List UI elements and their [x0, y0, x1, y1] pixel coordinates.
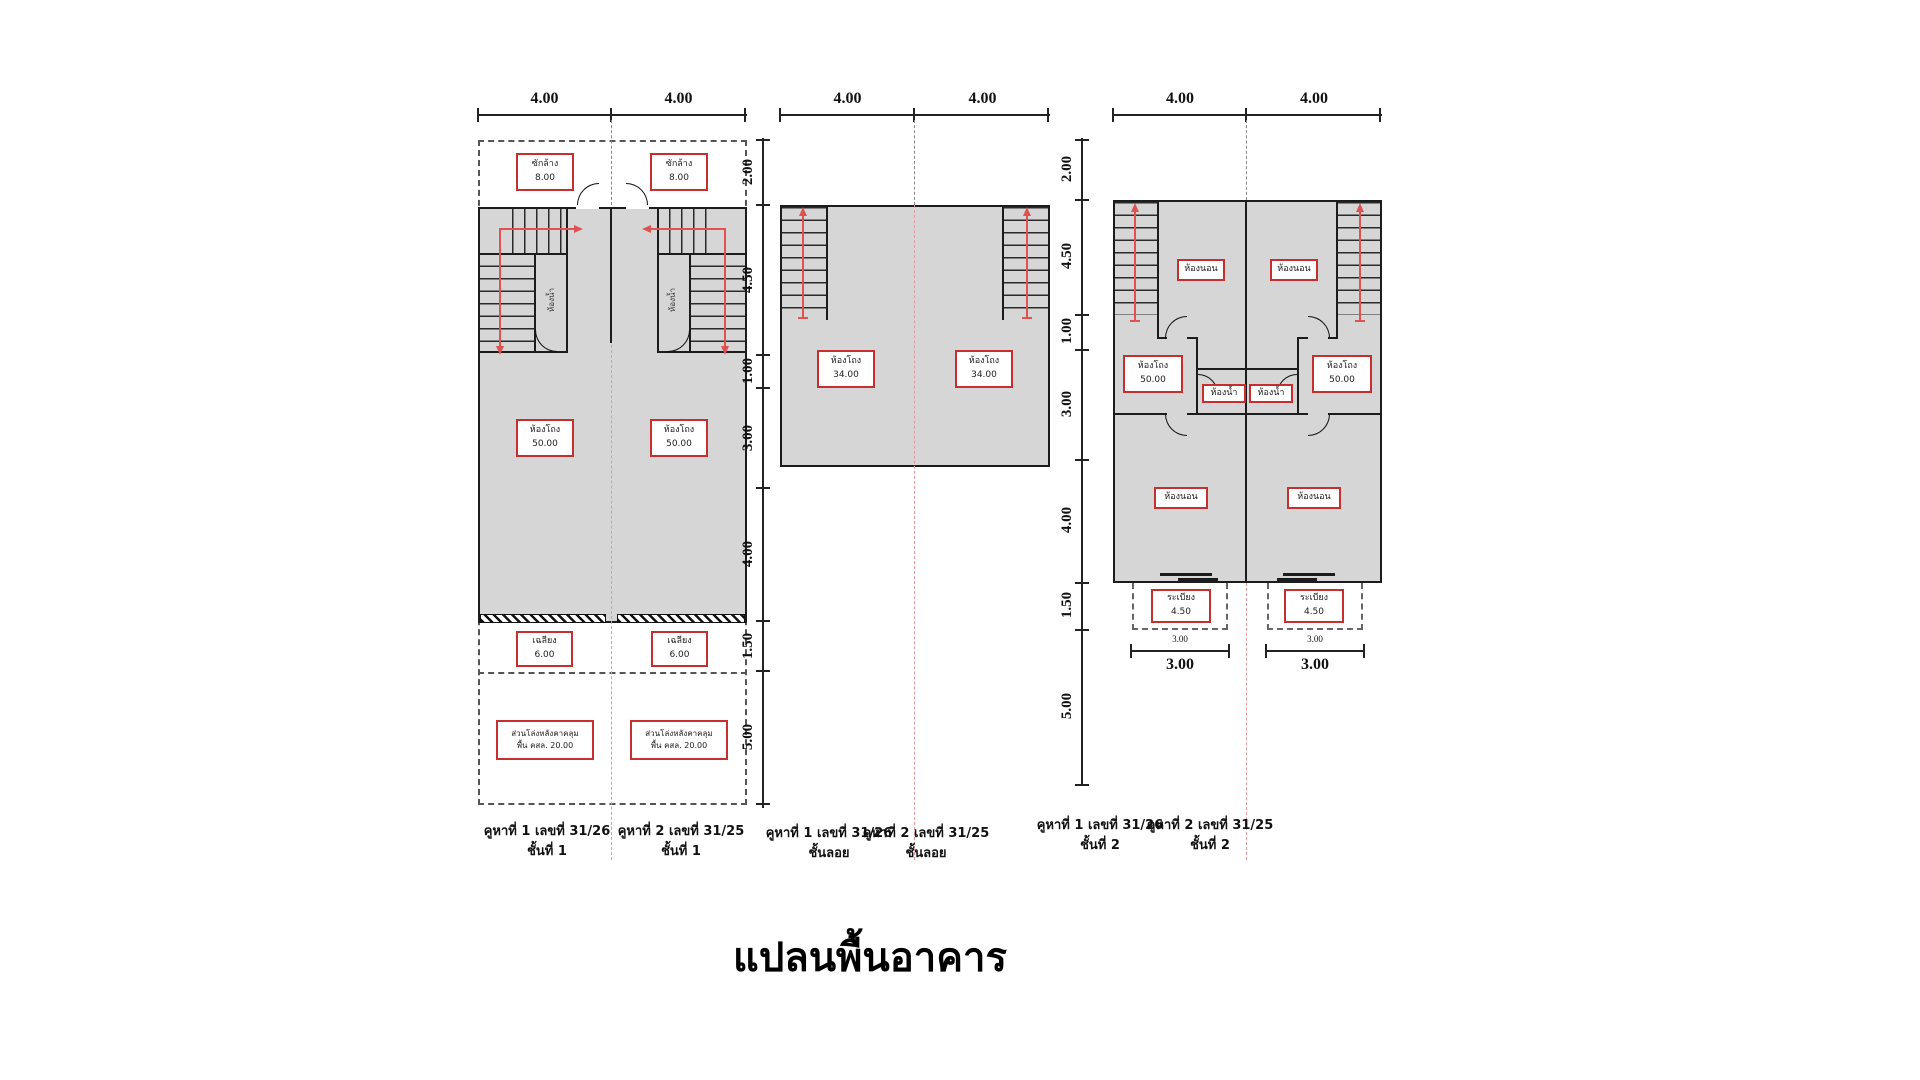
stair-upper-flight: [657, 209, 713, 253]
room-name: ระเบียง: [1167, 592, 1195, 606]
room-label-bath: ห้องน้ำ: [1202, 384, 1246, 403]
stair-up-arrow: [1356, 203, 1364, 212]
stair-lower-flight: [690, 253, 745, 353]
bedroom-wall: [1297, 337, 1299, 370]
dimension-tick: [756, 803, 770, 805]
room-label-balcony: ระเบียง 4.50: [1151, 589, 1211, 623]
bath-wall: [657, 209, 659, 353]
bedroom-wall: [1196, 337, 1198, 370]
dimension-tick: [1075, 314, 1089, 316]
dimension-label: 4.00: [740, 532, 756, 576]
room-label-open-area: ส่วนโล่งหลังคาคลุม พื้น คสล. 20.00: [630, 720, 728, 760]
stair-flight: [782, 207, 826, 318]
room-name: ซักล้าง: [532, 158, 559, 172]
stair-up-arrow: [1131, 203, 1139, 212]
room-area: 4.50: [1171, 606, 1191, 620]
dimension-tick: [1075, 784, 1089, 786]
sliding-door-wall: [480, 614, 606, 623]
dimension-label: 3.00: [1059, 382, 1075, 426]
room-name: ห้องน้ำ: [1211, 387, 1238, 401]
centerline-dashed: [914, 120, 915, 205]
room-name: ห้องนอน: [1184, 263, 1217, 277]
unit-caption: คูหาที่ 2 เลขที่ 31/25: [606, 820, 756, 841]
unit-caption: คูหาที่ 2 เลขที่ 31/25: [851, 822, 1001, 843]
room-name: ห้องโถง: [1327, 360, 1357, 374]
bath-wall: [1247, 368, 1299, 370]
dimension-label: 3.00: [1293, 656, 1337, 674]
dimension-label: 3.00: [740, 416, 756, 460]
stair-direction-line: [1359, 210, 1361, 320]
dimension-label: 3.00: [1158, 656, 1202, 674]
stair-wall: [689, 253, 691, 353]
dimension-tick: [1075, 459, 1089, 461]
stair-upper-flight: [512, 209, 568, 253]
room-area: 50.00: [666, 438, 692, 452]
stair-wall: [480, 253, 568, 255]
room-area: 6.00: [669, 649, 689, 663]
stair-wall: [1336, 200, 1338, 339]
room-label-open-area: ส่วนโล่งหลังคาคลุม พื้น คสล. 20.00: [496, 720, 594, 760]
dimension-label: 4.00: [780, 90, 915, 108]
floor-caption: ชั้นลอย: [851, 842, 1001, 863]
room-label-hall: ห้องโถง 50.00: [1312, 355, 1372, 393]
room-name: ส่วนโล่งหลังคาคลุม: [511, 728, 578, 740]
room-label-bedroom: ห้องนอน: [1177, 259, 1225, 281]
dimension-tick: [1075, 349, 1089, 351]
dimension-tick: [1075, 582, 1089, 584]
dimension-line: [477, 114, 747, 116]
room-area: พื้น คสล. 20.00: [651, 740, 707, 752]
dimension-tick: [1363, 644, 1365, 658]
dimension-label: 4.50: [740, 258, 756, 302]
floor-plan-sheet: 4.00 4.00 ห้องน้ำ ห้องน้ำ ซักล้าง 8.00 ซ…: [0, 0, 1920, 1080]
stair-wall: [1157, 200, 1159, 339]
room-label-hall: ห้องโถง 50.00: [516, 419, 574, 457]
bath-wall: [566, 209, 568, 353]
dimension-label: 4.00: [1059, 498, 1075, 542]
centerline-dashed: [1246, 120, 1247, 200]
dimension-tick: [756, 620, 770, 622]
dimension-tick: [1075, 139, 1089, 141]
dimension-tick: [756, 204, 770, 206]
room-label-hall: ห้องโถง 34.00: [817, 350, 875, 388]
dimension-tick: [477, 108, 479, 122]
sliding-door-wall: [617, 614, 745, 623]
party-wall: [610, 207, 612, 343]
centerline-pink: [611, 345, 612, 860]
room-label-bedroom: ห้องนอน: [1270, 259, 1318, 281]
bath-wall: [1196, 368, 1248, 370]
porch-boundary-dashed-line: [478, 672, 747, 674]
dimension-line: [1081, 138, 1083, 786]
room-name: เฉลียง: [532, 635, 556, 649]
unit-caption: คูหาที่ 1 เลขที่ 31/26: [472, 820, 622, 841]
room-label-wash: ซักล้าง 8.00: [516, 153, 574, 191]
sliding-window: [1283, 573, 1335, 576]
room-label-bedroom: ห้องนอน: [1154, 487, 1208, 509]
stair-direction-line: [1026, 214, 1028, 318]
stair-up-arrow: [574, 225, 583, 233]
room-name: ซักล้าง: [666, 158, 693, 172]
room-name: ระเบียง: [1300, 592, 1328, 606]
stair-start-tick: [798, 317, 808, 319]
stair-direction-line: [1134, 210, 1136, 320]
sheet-title: แปลนพื้นอาคาร: [640, 925, 1100, 989]
dimension-tick: [1047, 108, 1049, 122]
stair-start-tick: [1022, 317, 1032, 319]
dimension-tick: [756, 354, 770, 356]
stair-up-arrow: [642, 225, 651, 233]
stair-start-tick: [1130, 320, 1140, 322]
room-name: ห้องน้ำ: [1258, 387, 1285, 401]
dimension-tick: [756, 139, 770, 141]
stair-up-arrow: [799, 207, 807, 216]
floor-caption: ชั้นที่ 2: [1135, 834, 1285, 855]
dimension-label: 3.00: [1164, 634, 1196, 644]
stair-direction-line: [649, 228, 725, 230]
room-label-porch: เฉลียง 6.00: [651, 631, 708, 667]
room-name: ห้องนอน: [1164, 491, 1197, 505]
stair-wall: [1002, 205, 1004, 320]
stair-flight: [1115, 202, 1157, 315]
room-label-hall: ห้องโถง 50.00: [650, 419, 708, 457]
dimension-tick: [756, 670, 770, 672]
dimension-tick: [1228, 644, 1230, 658]
dimension-label: 4.00: [1113, 90, 1247, 108]
dimension-tick: [756, 487, 770, 489]
dimension-tick: [1075, 199, 1089, 201]
dimension-tick: [756, 387, 770, 389]
room-name: ห้องโถง: [969, 355, 999, 369]
dimension-tick: [744, 108, 746, 122]
dimension-label: 4.00: [612, 90, 745, 108]
dimension-label: 1.00: [740, 349, 756, 393]
stair-down-arrow: [496, 346, 504, 355]
stair-down-arrow: [721, 346, 729, 355]
room-label-hall: ห้องโถง 50.00: [1123, 355, 1183, 393]
room-area: 34.00: [833, 369, 859, 383]
stair-direction-line: [724, 228, 726, 348]
room-area: 50.00: [1140, 374, 1166, 388]
room-name: ห้องโถง: [831, 355, 861, 369]
room-name: ส่วนโล่งหลังคาคลุม: [645, 728, 712, 740]
sliding-window: [1178, 578, 1218, 581]
hall-wall: [1187, 413, 1248, 415]
dimension-tick: [1075, 629, 1089, 631]
centerline-dashed: [611, 120, 612, 205]
room-area: 8.00: [535, 172, 555, 186]
room-area: 4.50: [1304, 606, 1324, 620]
dimension-label: 4.00: [478, 90, 611, 108]
centerline-pink: [914, 205, 915, 860]
dimension-tick: [779, 108, 781, 122]
room-area: พื้น คสล. 20.00: [517, 740, 573, 752]
room-label-wash: ซักล้าง 8.00: [650, 153, 708, 191]
dimension-line: [762, 138, 764, 808]
dimension-tick: [1379, 108, 1381, 122]
dimension-line: [1112, 114, 1382, 116]
room-label-porch: เฉลียง 6.00: [516, 631, 573, 667]
dimension-tick: [1130, 644, 1132, 658]
dimension-label: 1.50: [740, 624, 756, 668]
dimension-line: [1265, 650, 1365, 652]
room-name: ห้องโถง: [530, 424, 560, 438]
room-label-bath: ห้องน้ำ: [1249, 384, 1293, 403]
room-area: 50.00: [1329, 374, 1355, 388]
room-name: ห้องโถง: [1138, 360, 1168, 374]
bath-label: ห้องน้ำ: [545, 276, 559, 324]
dimension-label: 4.50: [1059, 234, 1075, 278]
dimension-label: 2.00: [1059, 147, 1075, 191]
stair-wall: [826, 205, 828, 320]
room-label-bedroom: ห้องนอน: [1287, 487, 1341, 509]
stair-start-tick: [1355, 320, 1365, 322]
floor-caption: ชั้นที่ 1: [472, 840, 622, 861]
dimension-label: 1.50: [1059, 583, 1075, 627]
stair-lower-flight: [480, 253, 535, 353]
dimension-label: 4.00: [915, 90, 1050, 108]
dimension-label: 2.00: [740, 150, 756, 194]
room-label-hall: ห้องโถง 34.00: [955, 350, 1013, 388]
stair-direction-line: [499, 228, 501, 348]
sliding-window: [1277, 578, 1317, 581]
dimension-tick: [1112, 108, 1114, 122]
dimension-label: 5.00: [1059, 684, 1075, 728]
room-area: 6.00: [534, 649, 554, 663]
floor-caption: ชั้นที่ 1: [606, 840, 756, 861]
dimension-label: 4.00: [1247, 90, 1381, 108]
unit-caption: คูหาที่ 2 เลขที่ 31/25: [1135, 814, 1285, 835]
room-label-balcony: ระเบียง 4.50: [1284, 589, 1344, 623]
hall-wall: [1113, 413, 1167, 415]
hall-wall: [1328, 413, 1382, 415]
dimension-line: [1130, 650, 1230, 652]
bath-label: ห้องน้ำ: [666, 276, 680, 324]
room-area: 50.00: [532, 438, 558, 452]
hall-wall: [1247, 413, 1308, 415]
dimension-label: 5.00: [740, 715, 756, 759]
room-name: ห้องนอน: [1297, 491, 1330, 505]
room-name: ห้องนอน: [1277, 263, 1310, 277]
room-area: 34.00: [971, 369, 997, 383]
room-name: เฉลียง: [667, 635, 691, 649]
dimension-tick: [1265, 644, 1267, 658]
stair-wall: [657, 253, 745, 255]
stair-direction-line: [802, 214, 804, 318]
stair-direction-line: [500, 228, 576, 230]
dimension-label: 3.00: [1299, 634, 1331, 644]
dimension-label: 1.00: [1059, 309, 1075, 353]
room-name: ห้องโถง: [664, 424, 694, 438]
sliding-window: [1160, 573, 1212, 576]
bath-wall: [1297, 368, 1299, 413]
stair-up-arrow: [1023, 207, 1031, 216]
room-area: 8.00: [669, 172, 689, 186]
